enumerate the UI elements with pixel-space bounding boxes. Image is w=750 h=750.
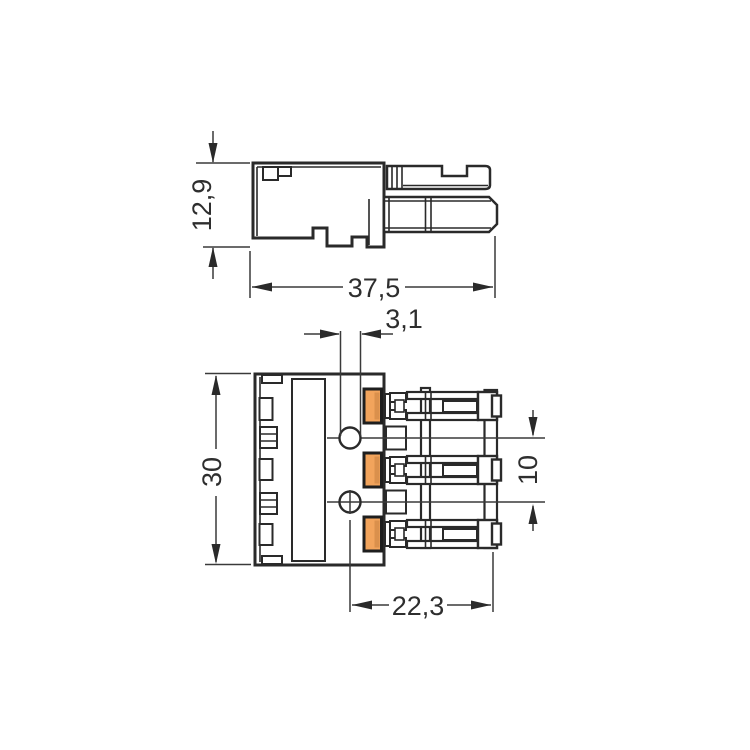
dim-arrowhead	[320, 330, 340, 339]
connector-technical-drawing: 12,9 37,5	[0, 0, 750, 750]
dim-label-30: 30	[197, 457, 227, 487]
side-view-top-notch-step	[278, 167, 291, 176]
dim-arrowhead	[212, 375, 221, 395]
profile-slot	[260, 459, 273, 480]
dim-arrowhead	[352, 601, 372, 610]
dim-label-10: 10	[513, 455, 543, 485]
drawing-canvas: 12,9 37,5	[0, 0, 750, 750]
dim-arrowhead	[209, 247, 218, 267]
pole-arm-3	[385, 519, 501, 549]
dim-label-3-1: 3,1	[385, 304, 423, 334]
profile-slot	[260, 398, 273, 420]
side-view-top-notch	[263, 167, 278, 180]
pole-arm-2	[385, 455, 501, 485]
dim-arrowhead	[209, 143, 218, 163]
contact-pin	[384, 197, 497, 232]
dim-arrowhead	[252, 283, 272, 292]
profile-slot	[260, 524, 273, 545]
dim-arrowhead	[212, 544, 221, 564]
dim-label-22-3: 22,3	[392, 591, 445, 621]
dimension-12-9: 12,9	[187, 131, 250, 279]
wire-test-hole-1	[340, 428, 361, 449]
profile-tab-top	[262, 375, 282, 383]
dim-arrowhead	[471, 601, 491, 610]
pole-arm-1	[385, 391, 501, 421]
dim-arrowhead	[361, 330, 381, 339]
push-button-1-shade	[375, 393, 380, 420]
dimension-10: 10	[513, 410, 543, 531]
dim-arrowhead	[529, 417, 538, 437]
front-view: 3,1 30 10 22,3	[197, 304, 545, 621]
dim-label-12-9: 12,9	[187, 179, 217, 232]
push-button-3-shade	[375, 521, 380, 548]
profile-barred-slot	[260, 427, 277, 448]
side-view: 12,9 37,5	[187, 131, 497, 303]
profile-barred-slot	[260, 493, 277, 514]
push-buttons	[364, 389, 382, 551]
dim-label-37-5: 37,5	[348, 273, 401, 303]
dim-arrowhead	[473, 283, 493, 292]
push-button-2-shade	[375, 457, 380, 484]
profile-tab-bottom	[262, 556, 282, 564]
dimension-30: 30	[197, 374, 251, 565]
dim-arrowhead	[529, 504, 538, 524]
marking-field	[292, 379, 325, 561]
